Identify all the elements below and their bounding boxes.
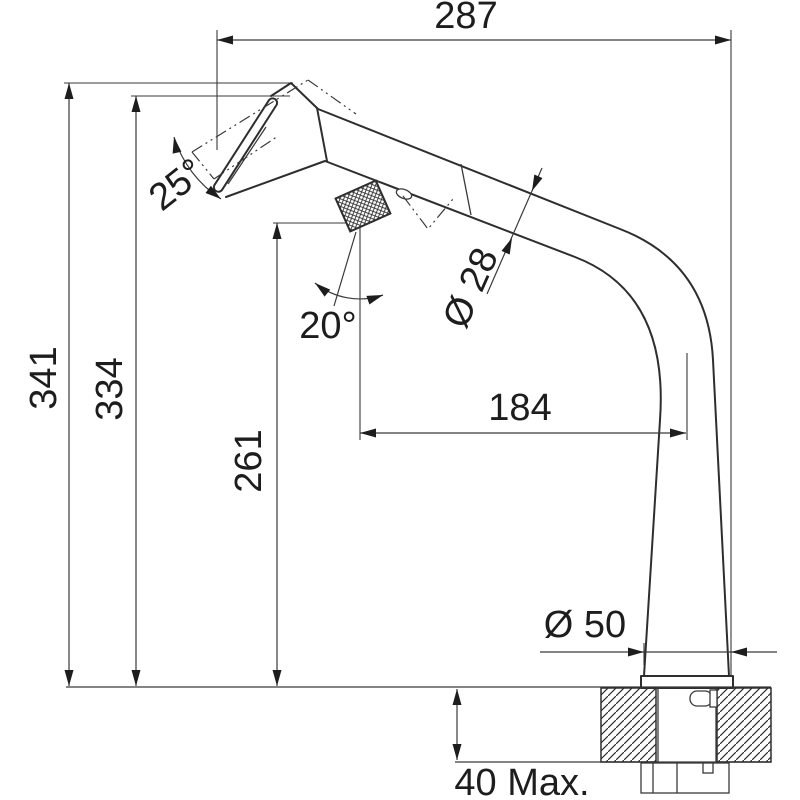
handle-height-label: 261 <box>228 429 270 492</box>
fixing-nut-tab <box>703 763 713 773</box>
hose-port-collar <box>710 690 717 707</box>
hose-port <box>690 691 712 706</box>
handle-swivel-angle-label: 20° <box>299 305 356 347</box>
faucet-dimension-drawing: 287 341 334 261 184 Ø 50 Ø 28 40 Max. 25… <box>0 0 800 800</box>
spout-reach-label: 184 <box>488 387 551 429</box>
base-flange <box>641 676 733 688</box>
total-height-label: 341 <box>23 346 65 409</box>
drawing-canvas: 287 341 334 261 184 Ø 50 Ø 28 40 Max. 25… <box>0 0 800 800</box>
counter-hatch-right <box>717 688 771 762</box>
counter-thickness-label: 40 Max. <box>454 762 589 800</box>
total-width-label: 287 <box>434 0 497 37</box>
spout-height-label: 334 <box>89 357 131 420</box>
base-diameter-label: Ø 50 <box>544 604 626 646</box>
counter-hatch-left <box>601 688 656 762</box>
fixing-nut <box>641 763 729 793</box>
